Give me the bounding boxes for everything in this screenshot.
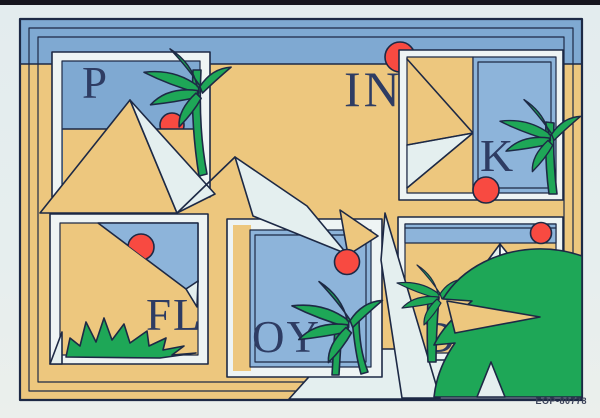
letter-k: K <box>480 130 513 181</box>
letter-p: P <box>82 58 107 108</box>
sun-icon <box>473 177 499 203</box>
sun-icon <box>531 223 552 244</box>
sun-icon <box>335 250 360 275</box>
panel-k: K <box>399 50 580 203</box>
panel-fl: FL <box>50 214 208 364</box>
postcard-photo: P K IN <box>0 0 600 418</box>
panel-oy-sand-strip <box>233 225 251 371</box>
catalog-code: EOP-80778 <box>535 396 587 406</box>
poster-illustration: P K IN <box>0 0 600 418</box>
letter-fl: FL <box>146 290 203 340</box>
letter-in: IN <box>344 61 403 117</box>
